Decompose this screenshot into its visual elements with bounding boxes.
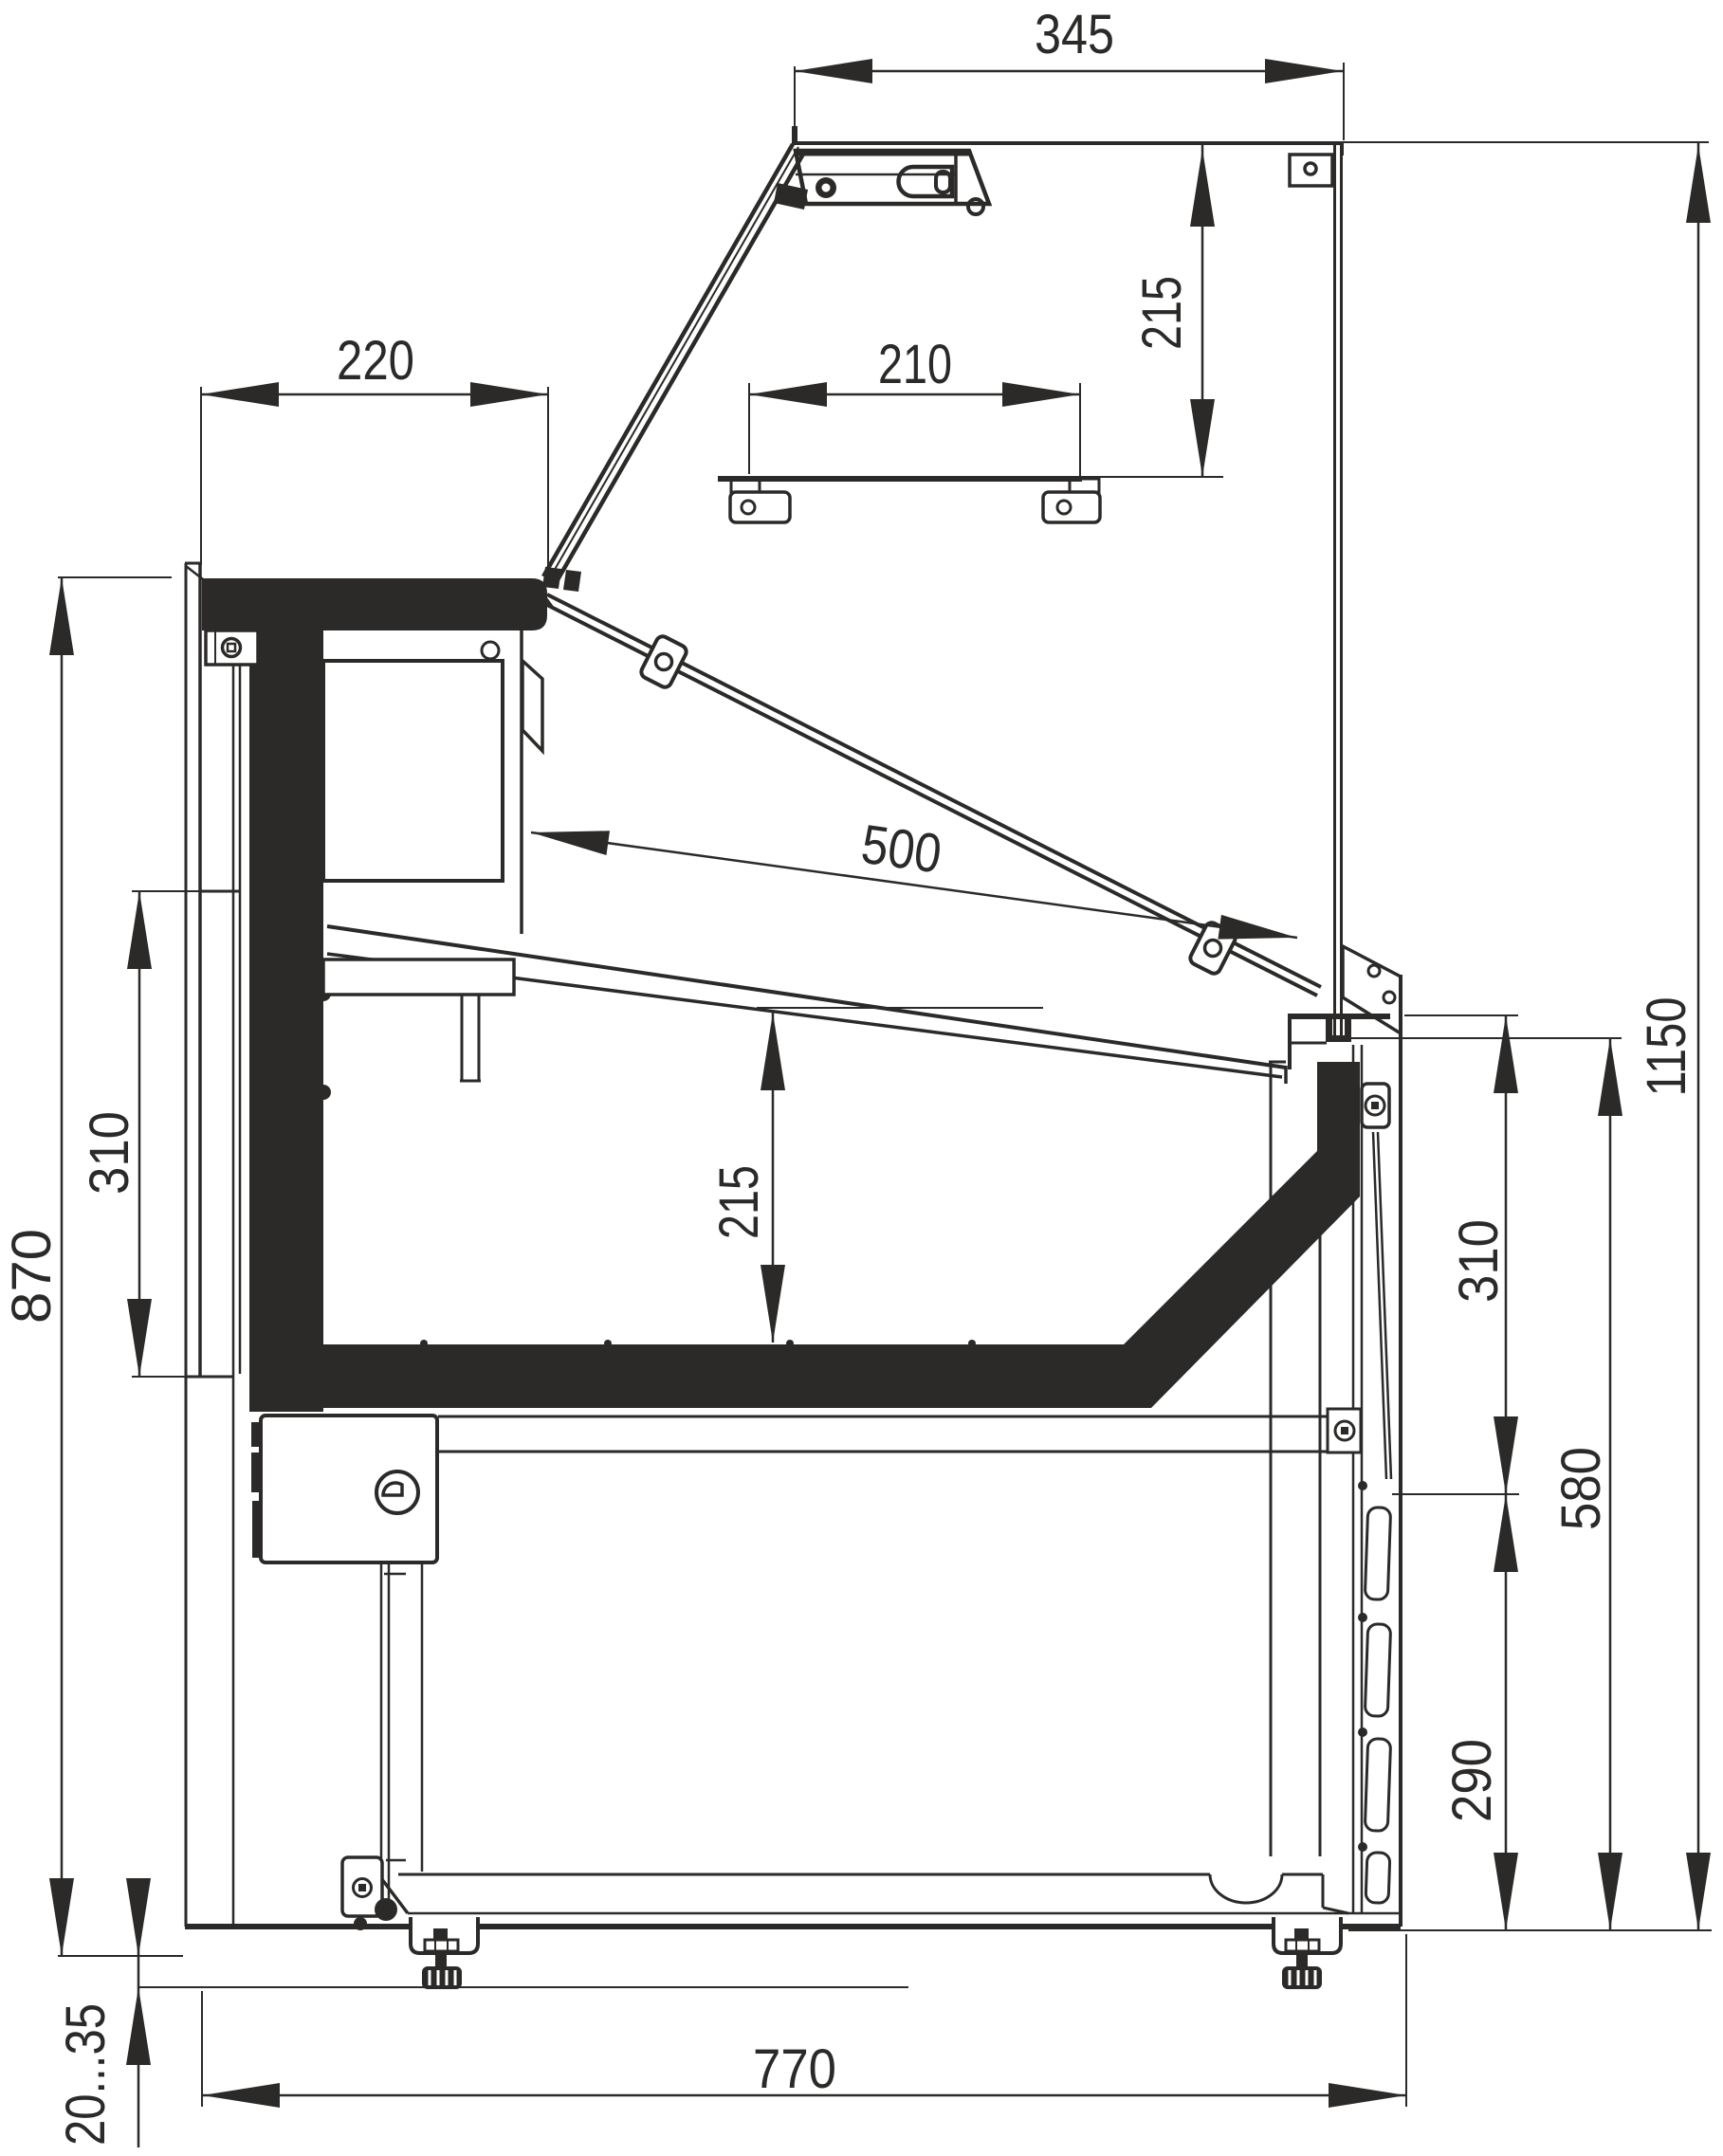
svg-text:215: 215 [708, 1165, 770, 1239]
svg-text:310: 310 [79, 1111, 140, 1195]
svg-text:310: 310 [1448, 1219, 1510, 1303]
svg-text:770: 770 [753, 2038, 836, 2100]
svg-text:1150: 1150 [1636, 997, 1697, 1097]
svg-text:500: 500 [858, 813, 945, 886]
svg-text:345: 345 [1035, 4, 1114, 65]
svg-text:290: 290 [1441, 1739, 1503, 1822]
svg-text:870: 870 [1, 1229, 63, 1324]
svg-text:210: 210 [878, 334, 952, 395]
svg-text:220: 220 [337, 330, 414, 392]
svg-text:20...35: 20...35 [55, 2003, 117, 2146]
svg-text:215: 215 [1131, 276, 1193, 350]
svg-text:580: 580 [1550, 1447, 1612, 1530]
